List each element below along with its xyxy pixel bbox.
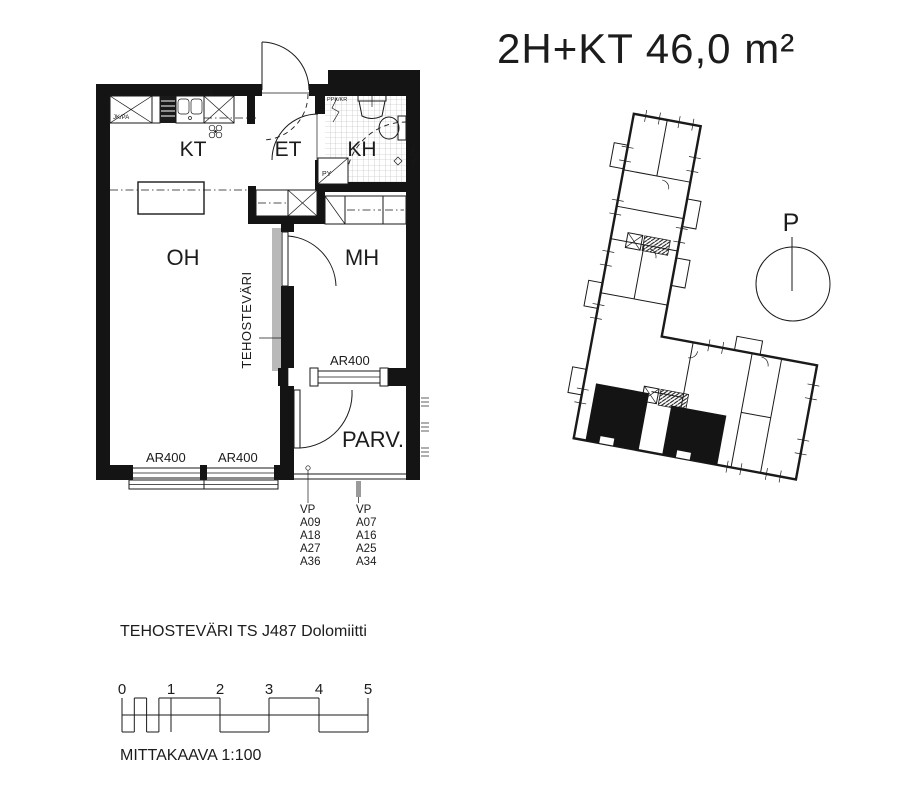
accent-wall-shadow	[272, 228, 281, 371]
building-overview-plan	[559, 105, 863, 486]
fridge-label: JK/PA	[113, 115, 129, 121]
compass-circle-icon	[756, 247, 830, 321]
room-label-oh: OH	[167, 245, 200, 270]
floor-plan-canvas: 2H+KT 46,0 m²	[0, 0, 905, 806]
laundry-label: PY	[322, 171, 332, 178]
kitchen-sink	[176, 96, 204, 123]
scale-number: 1	[167, 681, 175, 698]
railing-marks	[421, 398, 429, 456]
bedroom-closets	[325, 196, 406, 224]
scale-number: 3	[265, 681, 273, 698]
stove-label: L	[210, 88, 215, 97]
window-label-oh-left: AR400	[146, 450, 186, 465]
window-label-oh-right: AR400	[218, 450, 258, 465]
vp-leaders	[306, 466, 361, 503]
vp-right-item: A34	[356, 556, 377, 568]
scale-number: 0	[118, 681, 126, 698]
vp-list-left: VP A09 A18 A27 A36	[300, 504, 320, 568]
bedroom-door	[282, 232, 336, 286]
room-label-kt: KT	[180, 138, 207, 161]
room-label-mh: MH	[345, 245, 379, 270]
room-label-parv: PARV.	[342, 427, 404, 452]
apartment-floor-plan: KT ET KH OH MH PARV. JK/PA L PPK/KR PY A…	[96, 42, 429, 568]
stove-box	[160, 96, 176, 123]
vp-list-right: VP A07 A16 A25 A34	[356, 504, 377, 568]
window-label-mh: AR400	[330, 353, 370, 368]
vp-left-item: A18	[300, 530, 320, 542]
scale-caption: MITTAKAAVA 1:100	[120, 747, 261, 764]
page-title: 2H+KT 46,0 m²	[497, 25, 795, 72]
accent-wall-label: TEHOSTEVÄRI	[239, 271, 254, 368]
window-mh	[310, 368, 388, 386]
ventilation-fan-icon	[209, 125, 222, 138]
entrance-door	[262, 42, 309, 140]
vp-right-header: VP	[356, 504, 372, 516]
kitchen-island	[138, 182, 204, 214]
scale-bar-lines	[122, 698, 368, 732]
accent-color-note: TEHOSTEVÄRI TS J487 Dolomiitti	[120, 622, 367, 640]
vp-right-item: A25	[356, 543, 376, 555]
vp-right-item: A16	[356, 530, 376, 542]
entry-wardrobes	[256, 190, 317, 216]
vp-left-header: VP	[300, 504, 316, 516]
vp-leader-bar	[356, 481, 361, 497]
room-label-kh: KH	[347, 138, 376, 161]
window-oh-left	[129, 468, 204, 489]
floor-plan-sheet: 2H+KT 46,0 m²	[0, 0, 905, 806]
kitchen-counter	[110, 96, 256, 138]
vp-left-item: A36	[300, 556, 320, 568]
vp-right-item: A07	[356, 517, 376, 529]
scale-number: 2	[216, 681, 224, 698]
north-compass: P	[756, 209, 830, 321]
scale-number: 4	[315, 681, 323, 698]
scale-number: 5	[364, 681, 372, 698]
scale-bar: 0 1 2 3 4 5	[118, 681, 372, 732]
window-oh-right	[204, 468, 278, 489]
washer-label: PPK/KR	[327, 97, 347, 103]
room-label-et: ET	[275, 138, 302, 161]
compass-north-label: P	[783, 209, 800, 237]
vp-left-item: A27	[300, 543, 320, 555]
vp-left-item: A09	[300, 517, 320, 529]
